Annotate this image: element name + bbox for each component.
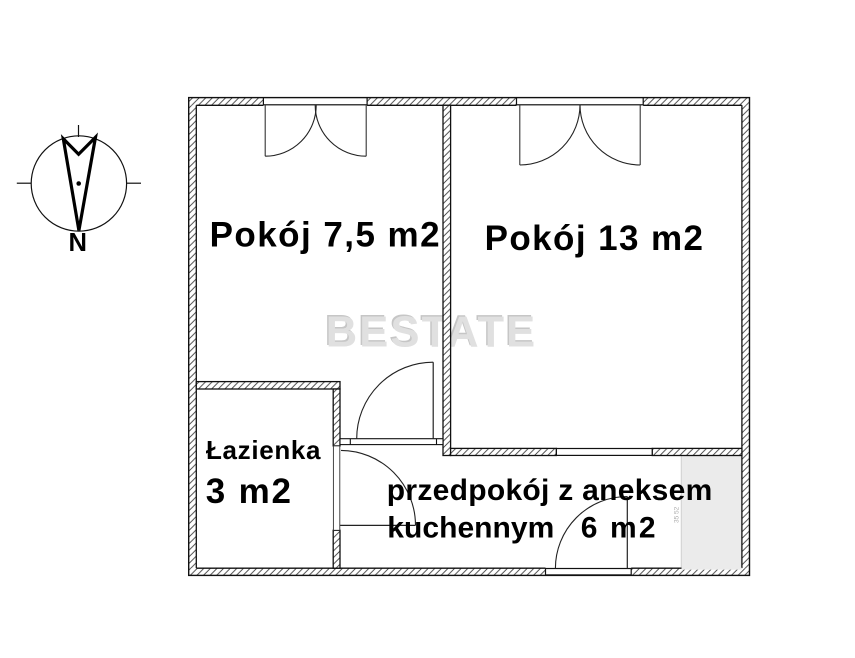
- svg-text:Łazienka: Łazienka: [206, 435, 321, 465]
- svg-text:Pokój 7,5 m2: Pokój 7,5 m2: [210, 216, 440, 255]
- svg-text:6 m2: 6 m2: [581, 512, 656, 545]
- svg-text:Pokój 13 m2: Pokój 13 m2: [485, 219, 703, 258]
- svg-text:35 52: 35 52: [674, 506, 681, 523]
- svg-text:kuchennym: kuchennym: [387, 512, 554, 545]
- svg-text:N: N: [68, 229, 86, 257]
- svg-text:przedpokój z aneksem: przedpokój z aneksem: [387, 474, 713, 507]
- svg-text:3 m2: 3 m2: [206, 472, 291, 511]
